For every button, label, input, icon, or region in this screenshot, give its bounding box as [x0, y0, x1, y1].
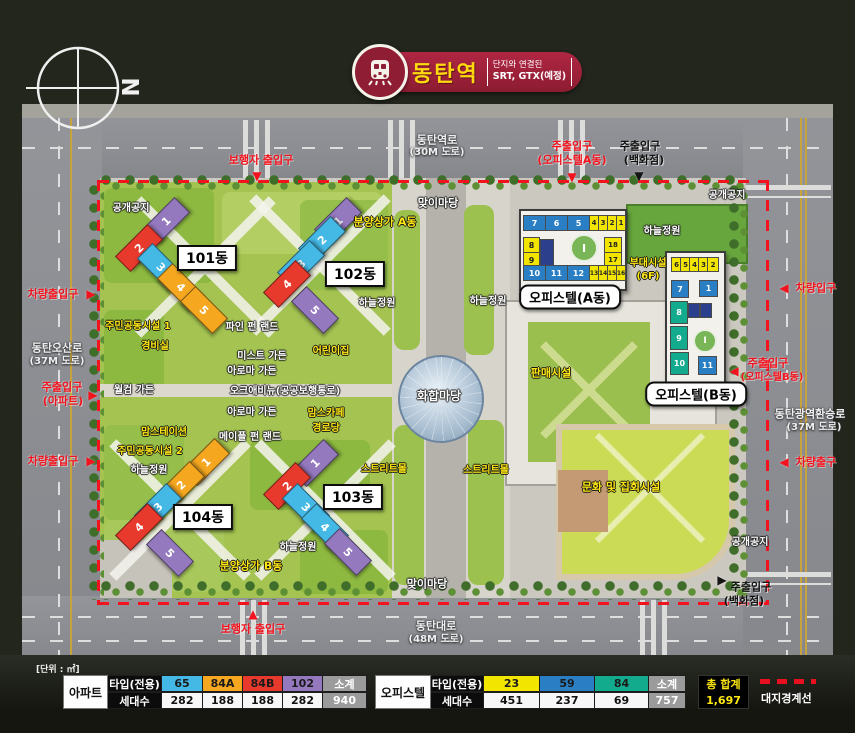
unit-type-cell: 84B: [243, 675, 283, 692]
unit-type-cell: 59: [540, 675, 595, 692]
entrance-arrow: ◀: [729, 365, 738, 377]
train-icon: [352, 44, 408, 100]
boundary-legend-label: 대지경계선: [761, 690, 812, 706]
unit-count-cell: 940: [323, 692, 367, 709]
unit-type-cell: 102: [283, 675, 323, 692]
map-label: 화합마당: [417, 390, 461, 402]
map-label: 아로마 가든: [227, 367, 276, 377]
officetel-cell: 10: [670, 352, 689, 375]
officetel-cell: 11: [698, 356, 717, 375]
apartment-segment: 5: [291, 286, 339, 334]
apartment-columns: 6528284A18884B188102282소계940: [162, 675, 367, 709]
map-label: 월컴 가든: [114, 386, 154, 396]
officetel-header-col: 타입(전용) 세대수: [431, 675, 484, 709]
map-label: 경비실: [141, 342, 169, 352]
officetel-cell: 1: [699, 280, 718, 297]
map-label: 분양상가 B동: [220, 561, 283, 572]
officetel-columns: 23451592378469소계757: [484, 675, 686, 709]
map-label: 동탄오산로: [32, 343, 83, 354]
map-label: (오피스텔A동): [537, 155, 606, 166]
building-label: 102동: [325, 261, 385, 287]
map-label: 주민공동시설 1: [105, 322, 171, 332]
unit-count-cell: 188: [243, 692, 283, 709]
officetel-cell: 18: [604, 237, 622, 253]
map-label: (백화점): [624, 155, 664, 166]
map-label: 메이플 펀 랜드: [219, 433, 281, 443]
map-label: 맞이마당: [418, 198, 458, 209]
unit-count-cell: 282: [283, 692, 323, 709]
unit-type-cell: 84: [595, 675, 649, 692]
entrance-arrow: ▶: [86, 455, 95, 467]
map-label: 동탄대로: [416, 621, 456, 632]
helipad-a: I: [570, 234, 598, 262]
map-label: 주출입구: [552, 141, 592, 152]
map-label: (30M 도로): [410, 148, 465, 158]
map-label: (백화점): [724, 596, 764, 607]
map-label: (아파트): [43, 396, 83, 407]
officetel-cell: 12: [567, 265, 590, 281]
map-label: 보행자 출입구: [229, 155, 294, 166]
count-header: 세대수: [431, 692, 484, 709]
officetel-cell: [700, 303, 712, 318]
station-subtext: 단지와 연결된 SRT, GTX(예정): [487, 58, 572, 85]
entrance-arrow: ▶: [88, 389, 97, 401]
officetel-cell: 16: [616, 265, 626, 281]
type-header: 타입(전용): [108, 675, 162, 692]
unit-column: 59237: [540, 675, 595, 709]
unit-count-cell: 451: [484, 692, 540, 709]
building-label: 103동: [323, 484, 383, 510]
officetel-cell: 11: [545, 265, 568, 281]
unit-type-cell: 65: [162, 675, 203, 692]
map-label: 공개공지: [732, 538, 769, 548]
officetel-cell: 10: [523, 265, 546, 281]
apartment-header-col: 타입(전용) 세대수: [108, 675, 162, 709]
entrance-arrow: ▲: [248, 608, 257, 620]
grand-total-value: 1,697: [699, 692, 748, 708]
map-label: 하늘정원: [280, 543, 317, 553]
map-label: 오크애비뉴(공공보행통로): [230, 387, 340, 397]
map-label: 보행자 출입구: [221, 624, 286, 635]
officetel-cell: [688, 303, 700, 318]
map-label: (6F): [637, 272, 660, 282]
map-label: 판매시설: [531, 368, 571, 379]
unit-count-cell: 69: [595, 692, 649, 709]
boundary-legend-dash: [760, 679, 816, 684]
unit-type-cell: 소계: [649, 675, 686, 692]
map-label: 스트리트몰: [361, 465, 407, 475]
unit-column: 23451: [484, 675, 540, 709]
unit-count-cell: 237: [540, 692, 595, 709]
map-label: 동탄광역환승로: [775, 409, 846, 420]
map-label: 차량입구: [796, 283, 836, 294]
map-label: 주출입구: [42, 382, 82, 393]
station-badge: 동탄역 단지와 연결된 SRT, GTX(예정): [352, 44, 582, 100]
officetel-label: 오피스텔(B동): [645, 382, 747, 407]
officetel-label: 오피스텔(A동): [519, 285, 621, 310]
officetel-cell: 5: [567, 215, 590, 231]
map-label: 부대시설: [630, 259, 667, 269]
unit-count-cell: 757: [649, 692, 686, 709]
unit-type-cell: 소계: [323, 675, 367, 692]
unit-column: 소계940: [323, 675, 367, 709]
apartment-table: 아파트 타입(전용) 세대수 6528284A18884B188102282소계…: [63, 675, 367, 709]
unit-type-cell: 84A: [203, 675, 243, 692]
entrance-arrow: ▼: [634, 170, 643, 182]
map-label: (오피스텔B동): [741, 373, 804, 383]
map-label: 경로당: [312, 424, 340, 434]
entrance-arrow: ▼: [567, 171, 576, 183]
map-label: 주출입구: [748, 358, 788, 369]
map-label: 아로마 가든: [227, 408, 276, 418]
map-label: 공개공지: [709, 191, 746, 201]
map-label: 주출입구: [620, 141, 660, 152]
map-label: 하늘정원: [470, 297, 507, 307]
grand-total-label: 총 합계: [699, 676, 748, 692]
unit-count-cell: 188: [203, 692, 243, 709]
unit-column: 소계757: [649, 675, 686, 709]
map-label: (48M 도로): [409, 635, 464, 645]
building-label: 104동: [173, 504, 233, 530]
grand-total-box: 총 합계 1,697: [698, 675, 749, 709]
officetel-table: 오피스텔 타입(전용) 세대수 23451592378469소계757: [375, 675, 686, 709]
station-name: 동탄역: [412, 56, 479, 88]
map-label: 하늘정원: [359, 299, 396, 309]
helipad-mark: I: [703, 336, 706, 346]
entrance-arrow: ▶: [86, 288, 95, 300]
officetel-cell: 8: [523, 237, 540, 253]
building-label: 101동: [177, 245, 237, 271]
map-label: 파인 펀 랜드: [226, 323, 279, 333]
officetel-cell: 9: [670, 326, 688, 350]
map-label: 스트리트몰: [463, 466, 509, 476]
unit-column: 84B188: [243, 675, 283, 709]
unit-count-cell: 282: [162, 692, 203, 709]
unit-column: 102282: [283, 675, 323, 709]
map-label: 공개공지: [113, 204, 150, 214]
map-label: (37M 도로): [787, 423, 842, 433]
entrance-arrow: ◀: [779, 456, 788, 468]
apartment-segment: 5: [146, 529, 194, 577]
entrance-arrow: ▶: [717, 574, 726, 586]
unit-note: [단위 : ㎡]: [36, 662, 80, 675]
apartment-group-label: 아파트: [63, 675, 108, 709]
helipad-b: I: [693, 329, 717, 353]
map-label: 맞이마당: [407, 579, 447, 590]
map-label: 차량출구: [796, 457, 836, 468]
map-label: 문화 및 집회시설: [582, 482, 661, 493]
map-label: 하늘정원: [644, 227, 681, 237]
officetel-cell: 7: [523, 215, 546, 231]
unit-type-cell: 23: [484, 675, 540, 692]
officetel-cell: 2: [707, 257, 719, 272]
map-label: 주출입구: [731, 582, 771, 593]
map-label: 어린이집: [313, 347, 350, 357]
unit-column: 65282: [162, 675, 203, 709]
officetel-cell: 8: [670, 301, 688, 324]
map-label: 동탄역로: [417, 135, 457, 146]
officetel-cell: 6: [545, 215, 568, 231]
map-label: 차량출입구: [28, 289, 79, 300]
apartment-segment: 5: [180, 286, 228, 334]
site-plan-canvas: I I 12345101동12345102동12345103동12345104동…: [0, 0, 855, 733]
map-label: 하늘정원: [131, 466, 168, 476]
officetel-cell: 7: [671, 280, 689, 298]
officetel-cell: [540, 239, 554, 268]
count-header: 세대수: [108, 692, 162, 709]
map-label: 맘스카페: [308, 409, 345, 419]
map-label: 분양상가 A동: [354, 217, 417, 228]
compass-north-letter: N: [116, 77, 142, 96]
unit-column: 84A188: [203, 675, 243, 709]
map-label: (37M 도로): [30, 357, 85, 367]
entrance-arrow: ◀: [779, 282, 788, 294]
station-subtext-line1: 단지와 연결된: [493, 60, 543, 70]
map-label: 차량출입구: [28, 456, 79, 467]
station-subtext-line2: SRT, GTX(예정): [493, 71, 566, 82]
officetel-cell: 1: [616, 215, 626, 231]
type-header: 타입(전용): [431, 675, 484, 692]
map-label: 주민공동시설 2: [117, 447, 183, 457]
helipad-mark: I: [582, 242, 586, 255]
map-label: 맘스테이션: [141, 428, 187, 438]
officetel-group-label: 오피스텔: [375, 675, 431, 709]
entrance-arrow: ▼: [252, 170, 261, 182]
map-label: 미스트 가든: [237, 352, 286, 362]
unit-column: 8469: [595, 675, 649, 709]
